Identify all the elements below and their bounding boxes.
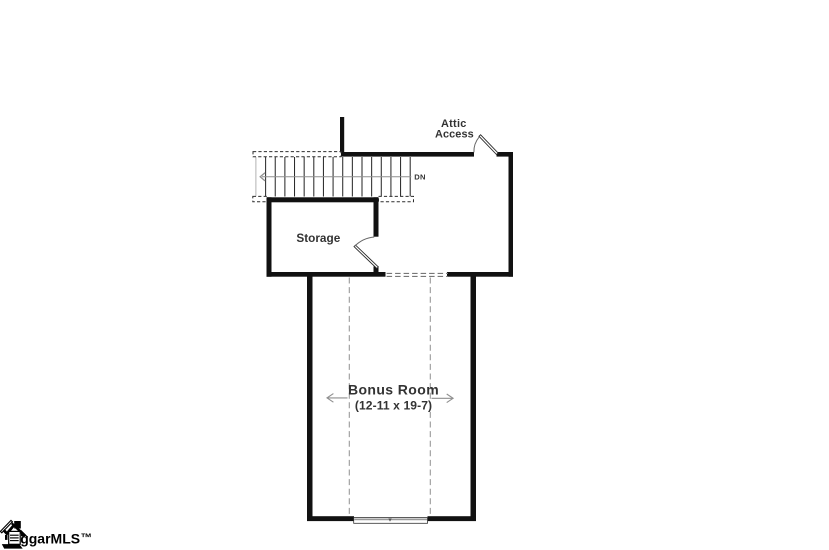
svg-text:DN: DN xyxy=(414,173,425,182)
svg-text:™: ™ xyxy=(81,533,93,545)
svg-text:(12-11 x 19-7): (12-11 x 19-7) xyxy=(355,399,432,413)
svg-text:Access: Access xyxy=(435,129,474,141)
svg-text:Bonus Room: Bonus Room xyxy=(348,382,439,398)
svg-text:ggarMLS: ggarMLS xyxy=(20,530,80,546)
svg-text:Storage: Storage xyxy=(296,231,340,245)
